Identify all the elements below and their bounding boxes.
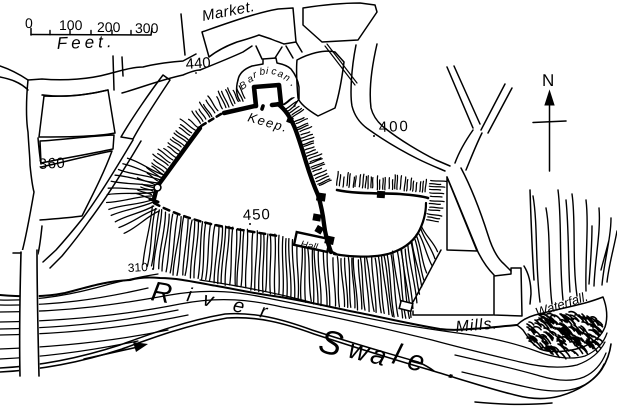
svg-text:Feet.: Feet.	[56, 32, 115, 53]
svg-text:300: 300	[135, 20, 159, 36]
svg-text:100: 100	[59, 17, 83, 33]
svg-text:400: 400	[379, 118, 411, 136]
svg-text:360: 360	[38, 155, 65, 173]
svg-text:450: 450	[243, 206, 272, 224]
svg-text:440: 440	[185, 54, 211, 73]
svg-text:N: N	[542, 71, 554, 90]
svg-text:0: 0	[25, 15, 33, 31]
svg-text:310: 310	[127, 260, 148, 275]
